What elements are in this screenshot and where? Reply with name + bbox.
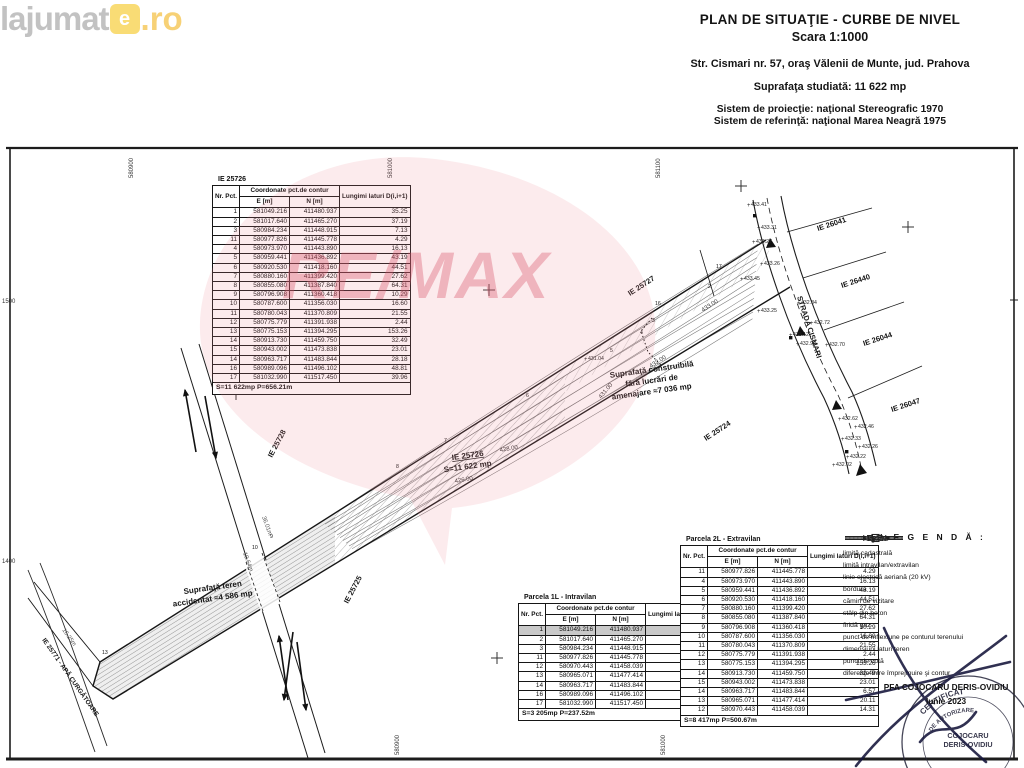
table-row: 5580959.441411436.89243.19 <box>213 254 411 263</box>
point-number: 17 <box>716 264 722 270</box>
legend-item: bordură <box>843 583 1023 595</box>
legend-item-label: firidă gaz <box>843 622 871 629</box>
parcel-id-label: IE 26044 <box>862 330 894 348</box>
diff-symbol: -1.01m <box>843 532 907 544</box>
table-row: 15580943.002411473.83823.01 <box>213 346 411 355</box>
plan-address: Str. Cismari nr. 57, oraş Vălenii de Mun… <box>640 58 1020 70</box>
legend-item: linie electrică aeriană (20 kV) <box>843 571 1023 583</box>
legend-item: 1punct de inflexiune pe conturul terenul… <box>843 631 1023 643</box>
table-row: 12580970.443411458.03914.31 <box>681 706 879 715</box>
legend-item-label: cămin de vizitare <box>843 598 894 605</box>
table-row: 3580984.234411448.9157.13 <box>213 226 411 235</box>
table-row: 12580775.779411391.9382.44 <box>213 318 411 327</box>
parcel-id-label: IE 25725 <box>342 574 364 605</box>
grid-label-top: 580900 <box>129 157 135 178</box>
table-row: 17581032.990411517.45039.96 <box>213 374 411 383</box>
spot-height-label: 432.46 <box>858 424 874 430</box>
point-number: 8 <box>396 464 399 470</box>
legend-item-label: limită cadastrală <box>843 550 892 557</box>
point-number: 4 <box>640 330 643 336</box>
legend-item-label: diferenţe între împrejmuire şi contur <box>843 670 950 677</box>
spot-height-label: 433.25 <box>761 308 777 314</box>
parcel-id-label: IE 25724 <box>702 418 733 442</box>
point-number: 16 <box>655 301 661 307</box>
legend-item-label: stâlp din beton <box>843 610 887 617</box>
table-row: 8580855.080411387.84064.31 <box>213 282 411 291</box>
grid-label-top: 581100 <box>656 158 662 178</box>
spot-height-label: 432.70 <box>829 342 845 348</box>
point-number: 13 <box>102 650 108 656</box>
legend-item-label: punct de cotă <box>843 658 884 665</box>
legend-item-label: bordură <box>843 586 866 593</box>
plan-title: PLAN DE SITUAŢIE - CURBE DE NIVEL <box>640 12 1020 27</box>
legend-item: limită intravilan/extravilan <box>843 559 1023 571</box>
point-number: 2 <box>708 284 711 290</box>
water-label: IE 25771 - APĂ CURGĂTOARE <box>40 636 101 718</box>
table-row: 11580977.826411445.7784.29 <box>213 236 411 245</box>
table-row: 7580880.160411399.42027.62 <box>213 272 411 281</box>
spot-height-label: 433.26 <box>764 261 780 267</box>
coordinates-table-overall: IE 25726Nr. Pct.Coordonate pct.de contur… <box>212 176 411 395</box>
table-row: 4580973.970411443.89016.13 <box>213 245 411 254</box>
table-row: 14580963.717411483.84428.18 <box>213 355 411 364</box>
table-row: 1581049.216411480.93735.25 <box>213 208 411 217</box>
table-caption: IE 25726 <box>218 176 411 183</box>
surveyor-name: PFA COJOCARU DERIS-OVIDIU <box>856 682 1024 692</box>
plan-scale: Scara 1:1000 <box>640 30 1020 44</box>
legend-item-label: punct de inflexiune pe conturul terenulu… <box>843 634 963 641</box>
table-row: 13580775.153411394.295153.26 <box>213 328 411 337</box>
title-block: PLAN DE SITUAŢIE - CURBE DE NIVEL Scara … <box>640 12 1020 127</box>
spot-height-label: 432.33 <box>845 436 861 442</box>
grid-label-left: 1400 <box>2 559 16 565</box>
spot-height-label: 432.26 <box>862 444 878 450</box>
point-number: 5 <box>610 348 613 354</box>
studied-area: Suprafaţa studiată: 11 622 mp <box>640 81 1020 93</box>
point-number: 1 <box>770 242 773 248</box>
legend-item: -1.01mdiferenţe între împrejmuire şi con… <box>843 667 1023 679</box>
point-number: 9 <box>270 534 273 540</box>
legend-item: firidă gaz <box>843 619 1023 631</box>
reference-system: Sistem de referinţă: naţional Marea Neag… <box>640 116 1020 127</box>
legend-item-label: dimensiuni laturi teren <box>843 646 910 653</box>
table-row: 10580787.600411356.03016.60 <box>213 300 411 309</box>
plan-sheet: IE 25727IE 25724IE 25728IE 25725IE 26041… <box>0 0 1024 768</box>
table-row: 15580943.002411473.83823.01 <box>681 678 879 687</box>
spot-height-label: 432.62 <box>842 416 858 422</box>
legend-item: limită cadastrală <box>843 547 1023 559</box>
parcel-id-label: IE 26440 <box>840 272 871 290</box>
legend-item-label: limită intravilan/extravilan <box>843 562 919 569</box>
plan-date: Iunie 2023 <box>856 696 1024 706</box>
table-row: 11580780.043411370.80921.55 <box>213 309 411 318</box>
point-number: 7 <box>444 438 447 444</box>
table-row: 14580913.730411459.75032.49 <box>213 337 411 346</box>
grid-label-bottom: 580900 <box>395 734 401 755</box>
spot-height-label: 431.04 <box>588 356 604 362</box>
point-number: 6 <box>526 393 529 399</box>
table-row: 14580963.717411483.8446.57 <box>681 688 879 697</box>
coordinate-table: Nr. Pct.Coordonate pct.de contur Lungimi… <box>212 185 411 395</box>
grid-label-left: 1500 <box>2 299 16 305</box>
table-row: 2581017.640411465.27037.19 <box>213 217 411 226</box>
table-row: 13580965.071411477.41420.11 <box>681 697 879 706</box>
legend-item: 15.25mdimensiuni laturi teren <box>843 643 1023 655</box>
legend-item: + 432.28punct de cotă <box>843 655 1023 667</box>
legend-item-label: linie electrică aeriană (20 kV) <box>843 574 931 581</box>
parcel-id-label: IE 25728 <box>266 428 288 459</box>
point-number: 10 <box>252 545 258 551</box>
svg-text:-1.01m: -1.01m <box>865 536 885 543</box>
parcel-id-label: IE 26047 <box>890 396 921 414</box>
parcel-id-label: IE 25727 <box>626 274 656 298</box>
water-course <box>28 563 107 752</box>
spot-height-label: 433.45 <box>744 276 760 282</box>
spot-height-label: 433.41 <box>751 202 767 208</box>
table-row: 9580796.908411360.41810.29 <box>213 291 411 300</box>
spot-height-label: 432.22 <box>850 454 866 460</box>
grid-label-bottom: 581000 <box>661 734 667 755</box>
spot-height-label: 433.31 <box>761 225 777 231</box>
projection-system: Sistem de proiecţie: naţional Stereograf… <box>640 104 1020 115</box>
strada-cismari <box>753 196 922 474</box>
legend-item: cămin de vizitare <box>843 595 1023 607</box>
table-row: 6580920.530411418.16044.51 <box>213 263 411 272</box>
legend: L E G E N D Ă : limită cadastralălimită … <box>843 532 1023 679</box>
parcel-id-label: IE 26041 <box>816 215 847 233</box>
grid-label-top: 581000 <box>388 157 394 178</box>
legend-item: stâlp din beton <box>843 607 1023 619</box>
spot-height-label: 432.02 <box>836 462 852 468</box>
spot-height-label: 432.72 <box>814 320 830 326</box>
point-number: 3 <box>652 318 655 324</box>
table-row: 16580989.096411496.10248.81 <box>213 364 411 373</box>
